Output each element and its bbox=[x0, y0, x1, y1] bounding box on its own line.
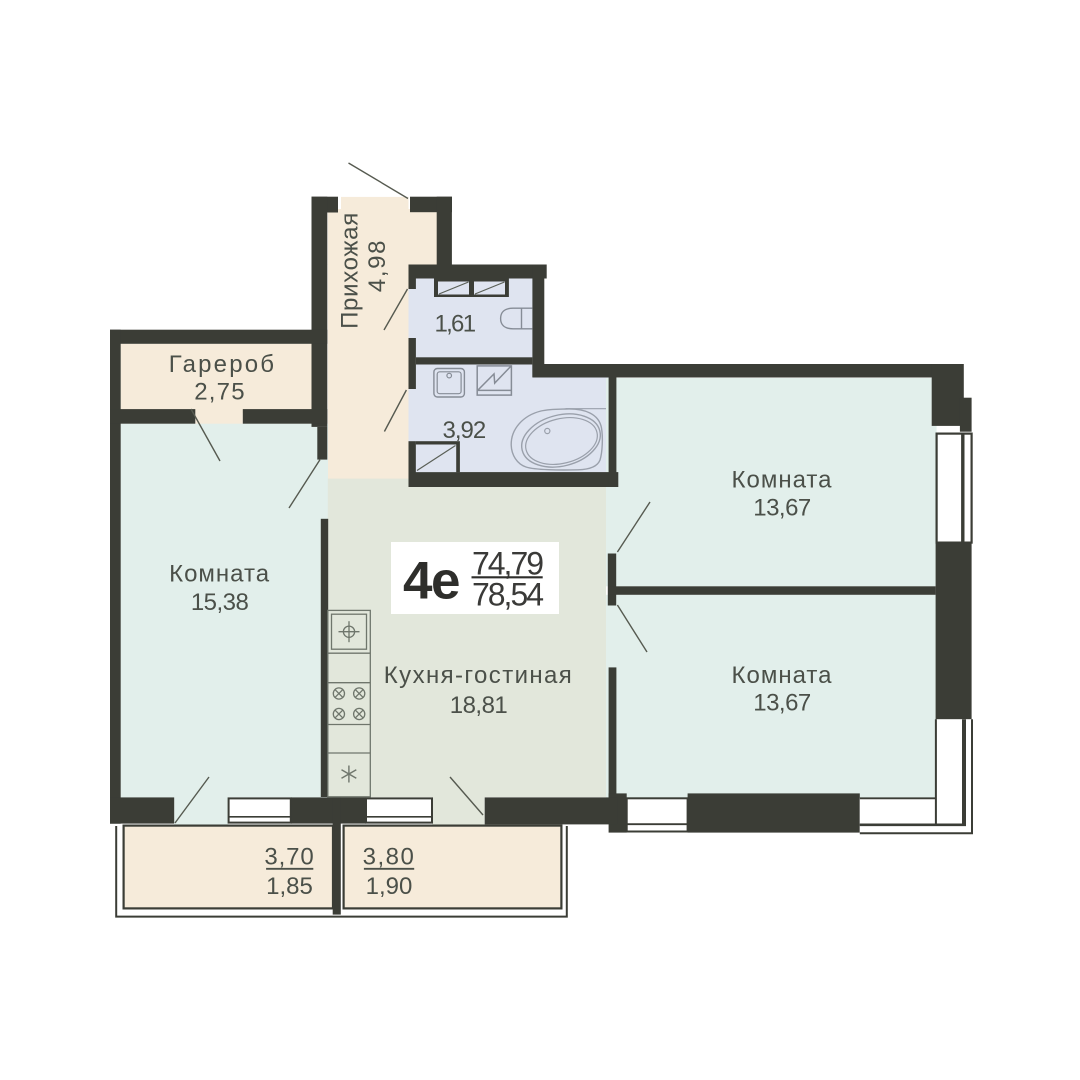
svg-text:1,61: 1,61 bbox=[434, 311, 475, 338]
svg-text:15,38: 15,38 bbox=[191, 589, 249, 616]
svg-text:3,70: 3,70 bbox=[264, 844, 314, 871]
svg-text:Гарероб: Гарероб bbox=[169, 351, 277, 378]
svg-text:Комната: Комната bbox=[169, 561, 270, 588]
svg-text:3,92: 3,92 bbox=[443, 417, 486, 444]
svg-text:13,67: 13,67 bbox=[753, 690, 811, 717]
svg-text:2,75: 2,75 bbox=[194, 379, 246, 406]
svg-text:1,85: 1,85 bbox=[266, 873, 313, 900]
svg-text:4,98: 4,98 bbox=[364, 239, 391, 292]
svg-text:78,54: 78,54 bbox=[472, 577, 543, 613]
svg-text:Прихожая: Прихожая bbox=[337, 212, 364, 329]
svg-text:18,81: 18,81 bbox=[450, 692, 508, 719]
svg-text:13,67: 13,67 bbox=[753, 495, 811, 522]
svg-text:Кухня-гостиная: Кухня-гостиная bbox=[384, 662, 573, 689]
svg-text:4е: 4е bbox=[403, 552, 459, 611]
svg-text:3,80: 3,80 bbox=[363, 844, 416, 871]
svg-text:Комната: Комната bbox=[732, 662, 833, 689]
svg-text:Комната: Комната bbox=[732, 467, 833, 494]
svg-text:1,90: 1,90 bbox=[366, 873, 413, 900]
